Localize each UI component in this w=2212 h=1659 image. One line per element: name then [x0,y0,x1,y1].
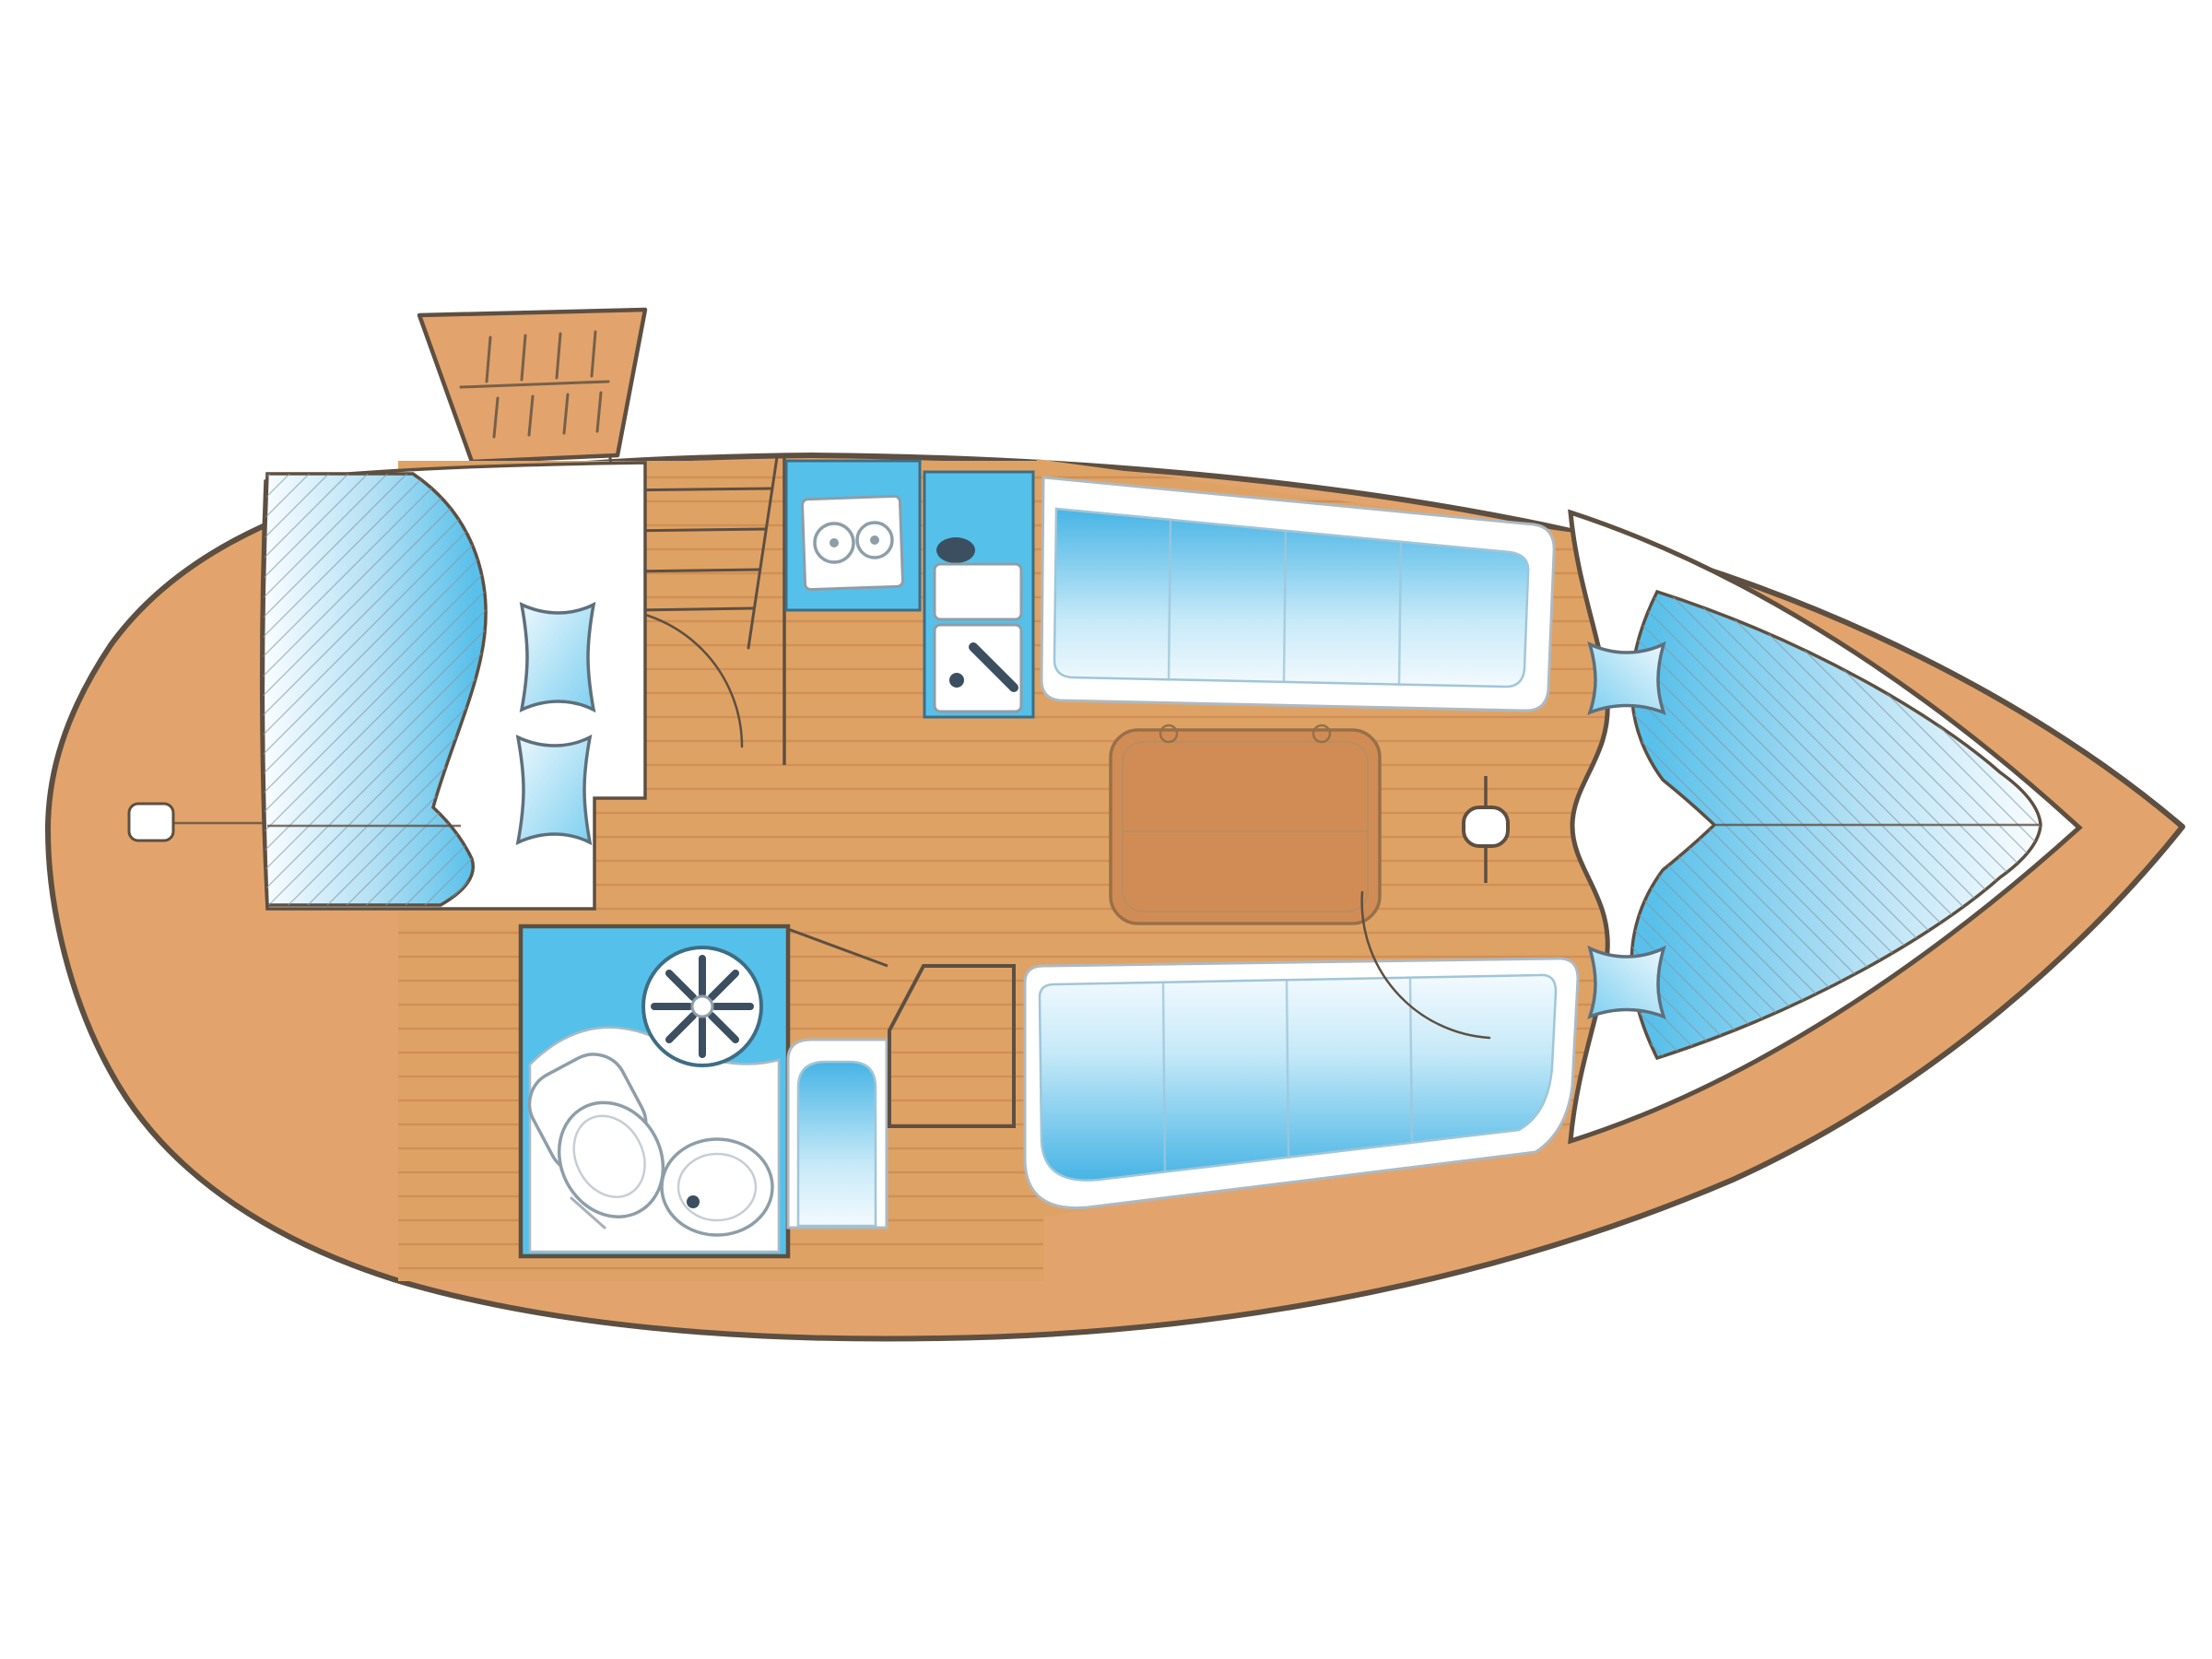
heads [518,926,788,1256]
faucet [936,537,975,563]
galley-stove [786,461,920,610]
v-berth-pillow-1 [1590,644,1664,712]
stern-step [129,804,173,841]
sink-drainboard [935,625,1021,712]
galley-sink [924,472,1033,717]
sink-basin [935,564,1021,619]
boat-floor-plan [0,0,2212,1659]
boat-floor-plan-stage [0,0,2212,1659]
mast [1464,807,1508,846]
aft-pillow-1 [522,605,594,710]
aft-berth-hatching [264,474,486,905]
salon-table [1111,725,1380,924]
washbasin [662,1139,772,1235]
cockpit-hatch [419,310,645,462]
aft-pillow-2 [518,737,590,842]
nav-seat-cushion [798,1062,876,1226]
v-berth-pillow-2 [1590,948,1664,1017]
shower-drain [643,947,761,1065]
